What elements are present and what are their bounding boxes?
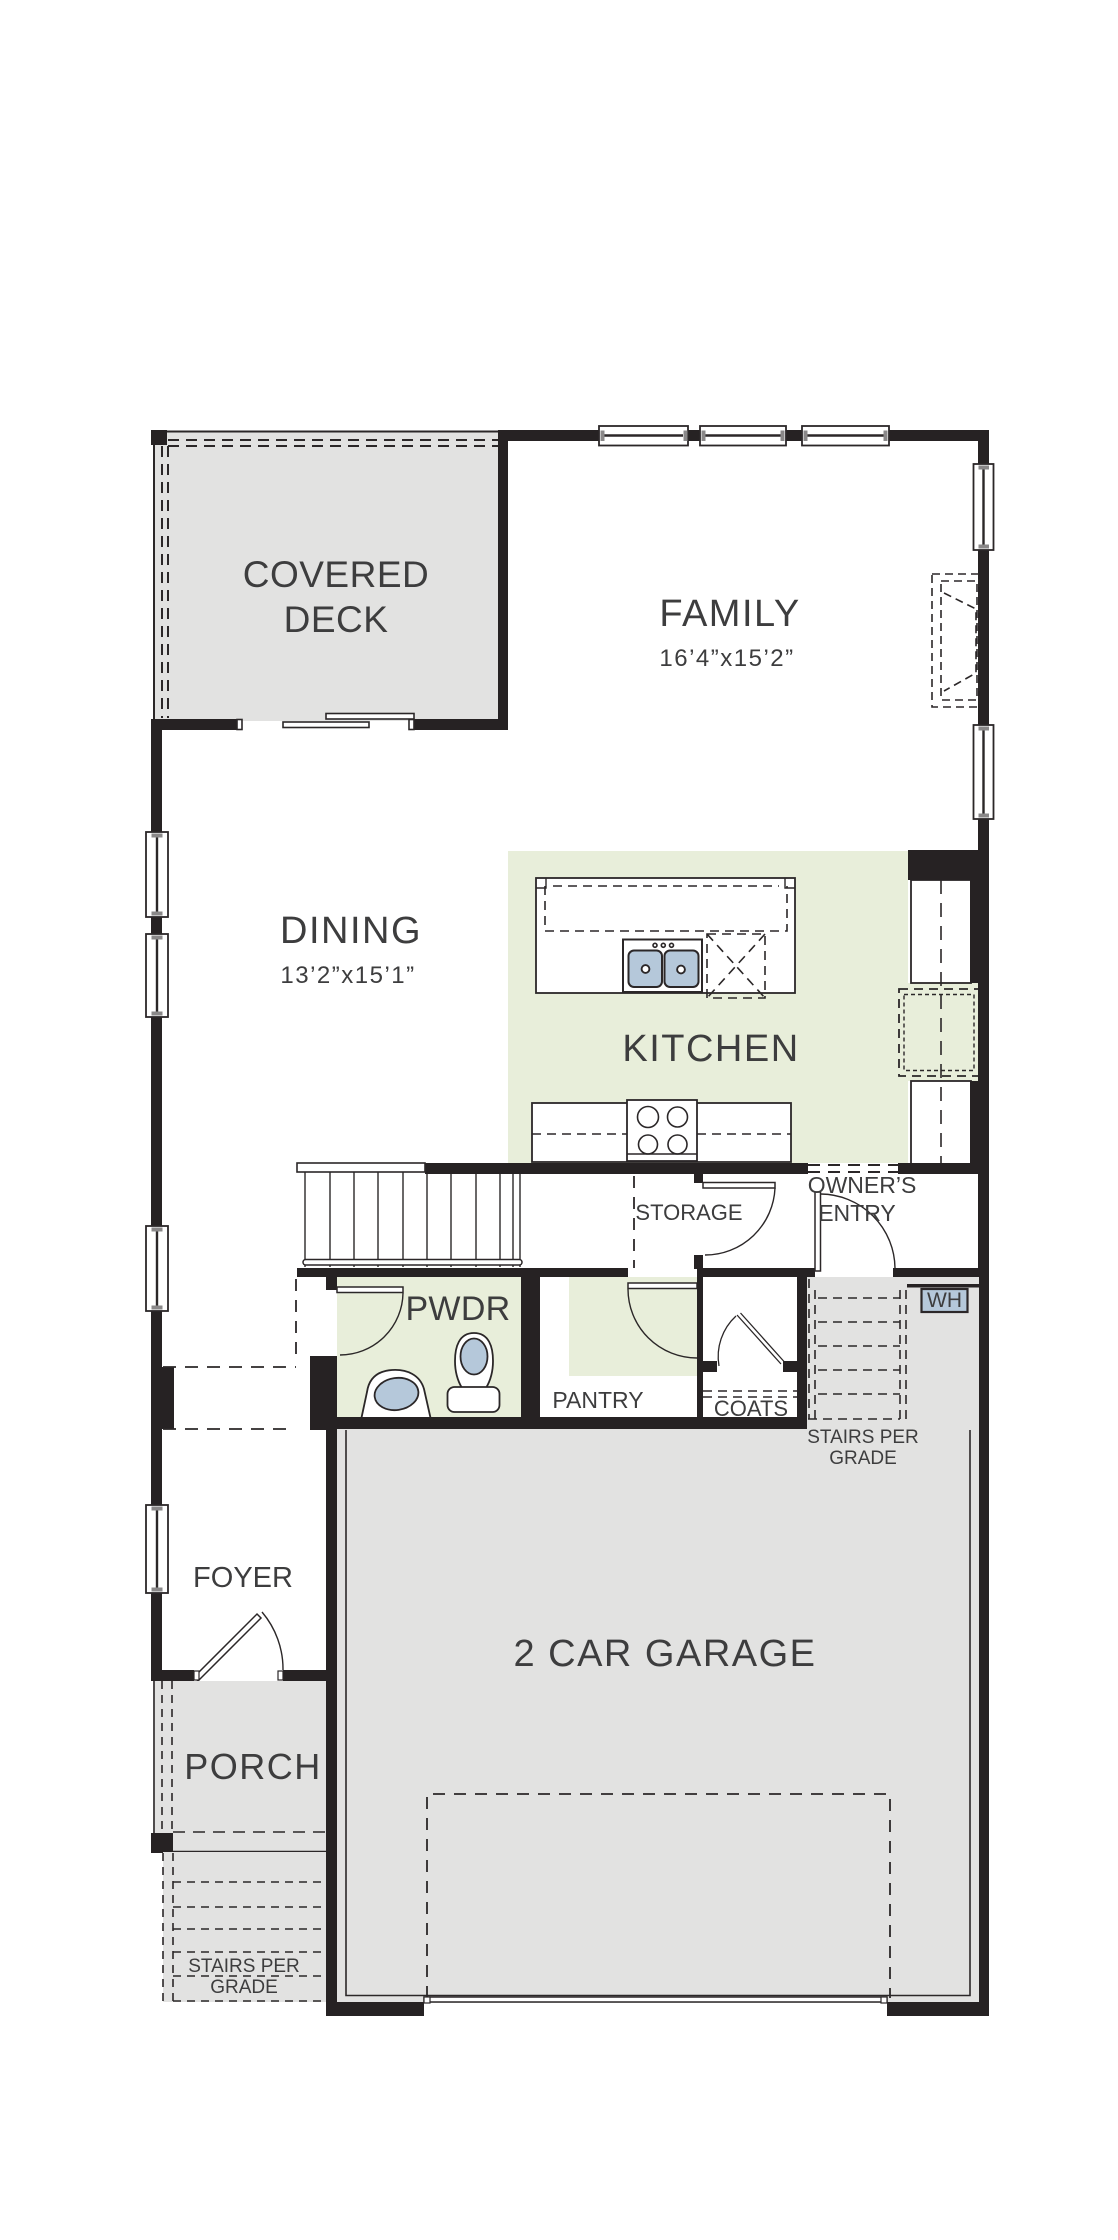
svg-text:OWNER’S: OWNER’S: [808, 1172, 917, 1198]
svg-text:STORAGE: STORAGE: [635, 1200, 742, 1225]
svg-text:FAMILY: FAMILY: [659, 593, 800, 635]
svg-text:STAIRS PER: STAIRS PER: [807, 1427, 919, 1448]
svg-text:COATS: COATS: [714, 1396, 788, 1421]
svg-text:WH: WH: [927, 1289, 962, 1312]
svg-text:PORCH: PORCH: [184, 1746, 322, 1787]
svg-text:STAIRS PER: STAIRS PER: [188, 1956, 300, 1977]
svg-text:COVERED: COVERED: [243, 554, 429, 595]
svg-text:16’4”x15’2”: 16’4”x15’2”: [659, 645, 794, 672]
svg-text:ENTRY: ENTRY: [818, 1200, 896, 1226]
svg-text:2 CAR GARAGE: 2 CAR GARAGE: [513, 1633, 816, 1675]
svg-text:FOYER: FOYER: [193, 1562, 293, 1594]
svg-text:DINING: DINING: [280, 910, 422, 952]
svg-text:13’2”x15’1”: 13’2”x15’1”: [280, 962, 415, 989]
svg-text:GRADE: GRADE: [210, 1977, 278, 1998]
svg-text:PANTRY: PANTRY: [552, 1387, 643, 1413]
svg-text:PWDR: PWDR: [405, 1290, 510, 1328]
svg-text:KITCHEN: KITCHEN: [622, 1028, 799, 1070]
svg-text:GRADE: GRADE: [829, 1448, 897, 1469]
svg-text:DECK: DECK: [284, 599, 389, 640]
